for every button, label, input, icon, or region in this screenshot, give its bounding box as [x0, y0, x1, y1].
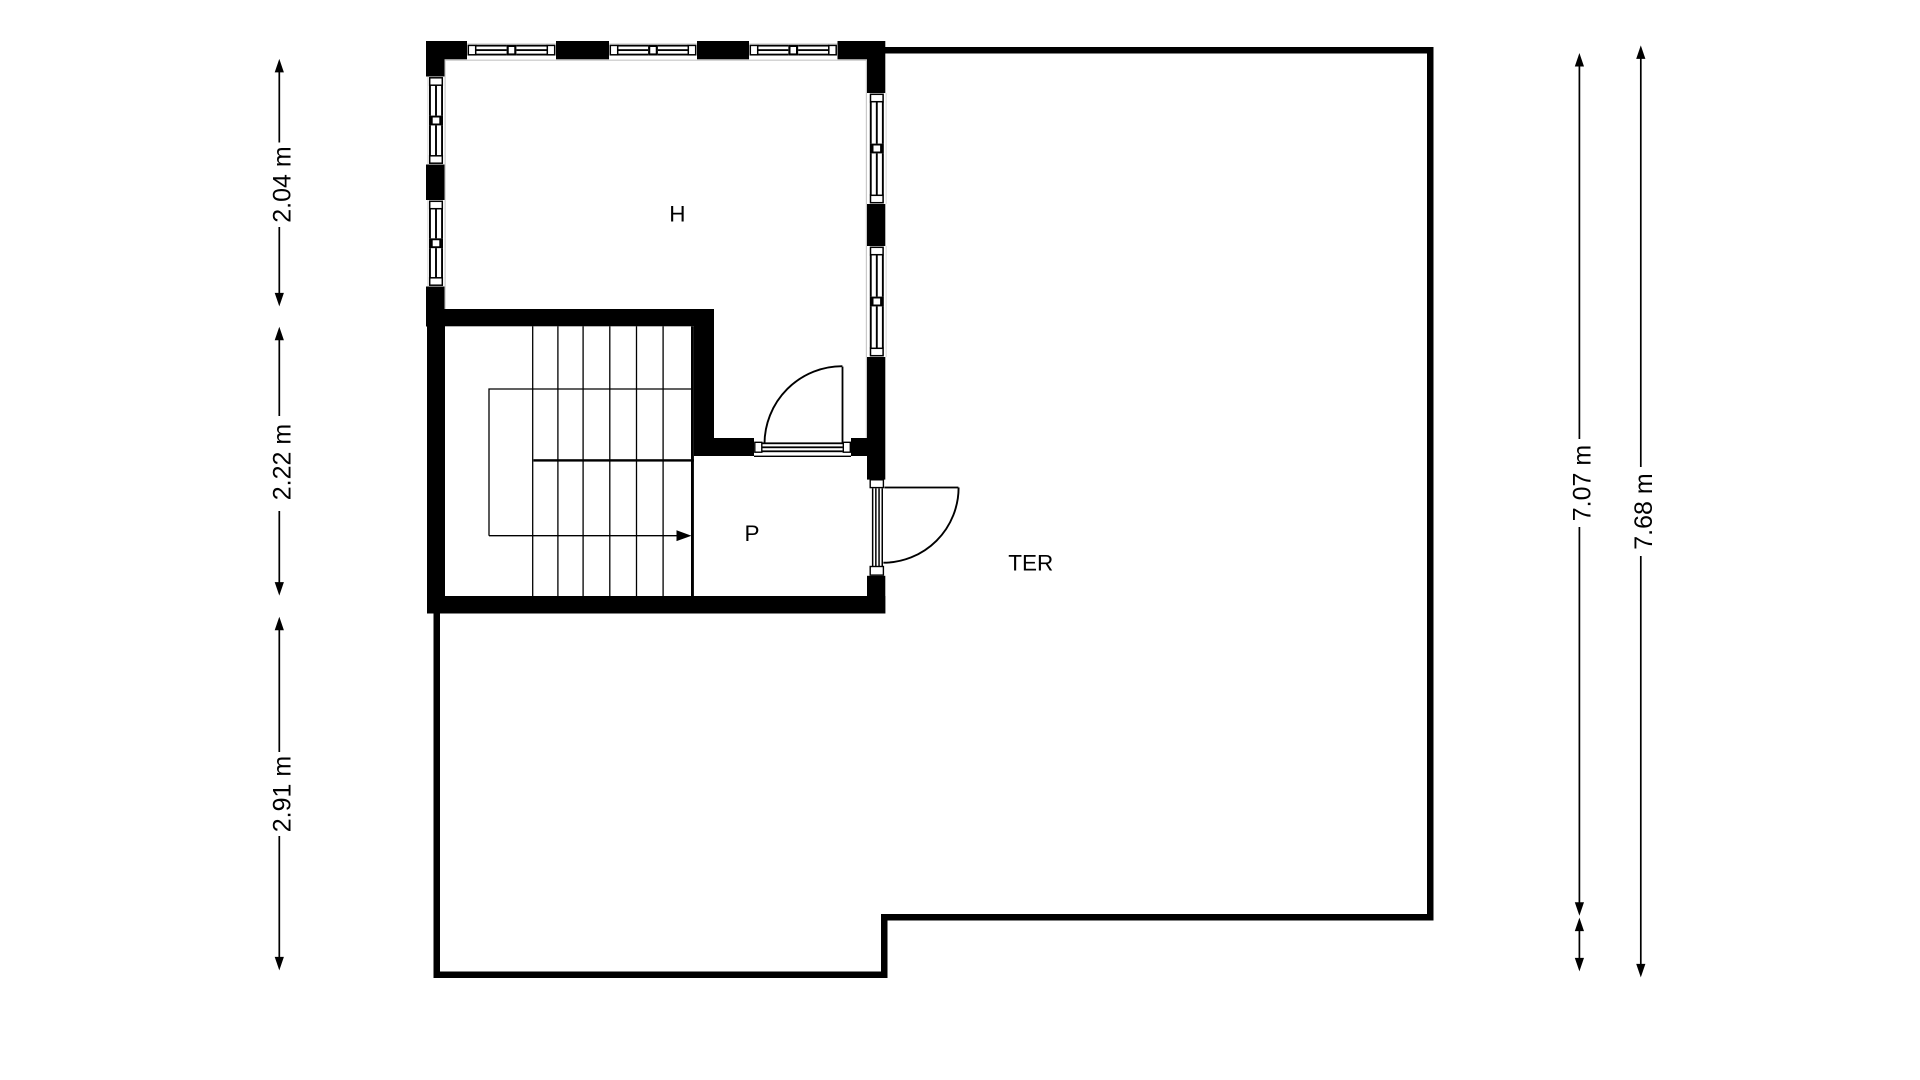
svg-text:H: H	[669, 202, 685, 227]
svg-text:TER: TER	[1008, 551, 1053, 576]
svg-text:2.04 m: 2.04 m	[269, 146, 297, 222]
svg-text:2.91 m: 2.91 m	[269, 756, 297, 832]
svg-text:2.22 m: 2.22 m	[269, 424, 297, 500]
svg-text:P: P	[744, 521, 759, 546]
svg-text:7.68 m: 7.68 m	[1630, 473, 1658, 549]
svg-text:7.07 m: 7.07 m	[1569, 445, 1597, 521]
